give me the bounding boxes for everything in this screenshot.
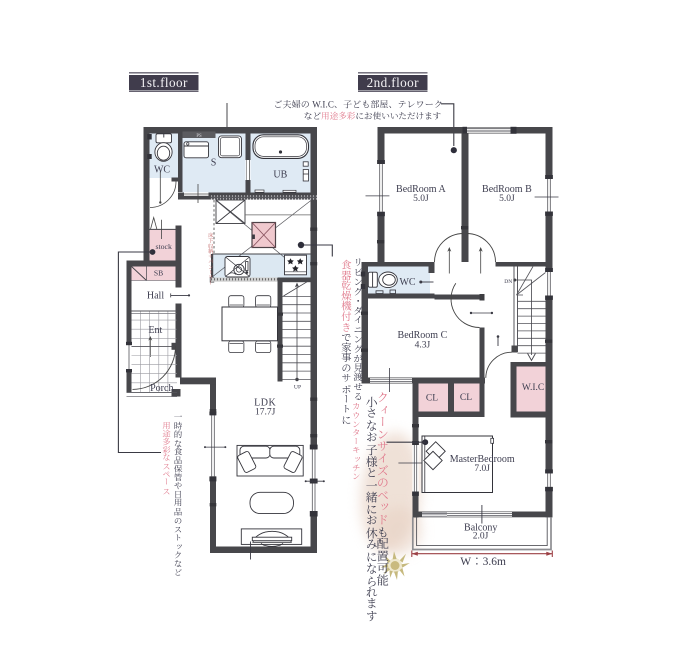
svg-text:WC: WC (399, 277, 415, 288)
svg-text:1st.floor: 1st.floor (140, 75, 188, 90)
svg-text:17.7J: 17.7J (255, 407, 276, 417)
svg-text:2nd.floor: 2nd.floor (367, 75, 420, 90)
svg-text:5.0J: 5.0J (499, 194, 515, 204)
svg-text:DN: DN (504, 279, 512, 285)
svg-text:CL: CL (426, 394, 438, 404)
svg-text:BedRoom C: BedRoom C (398, 330, 448, 341)
svg-text:UB: UB (273, 169, 287, 180)
svg-text:W：3.6m: W：3.6m (460, 556, 506, 568)
svg-text:UP: UP (294, 385, 301, 391)
svg-text:Hall: Hall (147, 290, 164, 301)
svg-text:7.0J: 7.0J (474, 464, 490, 474)
svg-text:Ent: Ent (148, 325, 162, 336)
svg-text:stock: stock (155, 242, 172, 251)
svg-text:Porch: Porch (150, 383, 173, 394)
svg-text:SB: SB (154, 269, 163, 278)
svg-text:WC: WC (154, 164, 170, 175)
svg-text:W.I.C: W.I.C (522, 383, 544, 393)
svg-text:2.0J: 2.0J (473, 531, 489, 541)
svg-text:5.0J: 5.0J (413, 194, 429, 204)
svg-text:CL: CL (460, 393, 472, 403)
svg-text:S: S (211, 157, 217, 168)
svg-text:ご夫婦の W.I.C、子ども部屋、テレワーク: ご夫婦の W.I.C、子ども部屋、テレワーク (274, 99, 443, 109)
svg-text:4.3J: 4.3J (415, 341, 431, 351)
svg-text:PS: PS (196, 134, 202, 139)
svg-text:など用途多彩にお使いいただけます: など用途多彩にお使いいただけます (304, 111, 441, 121)
